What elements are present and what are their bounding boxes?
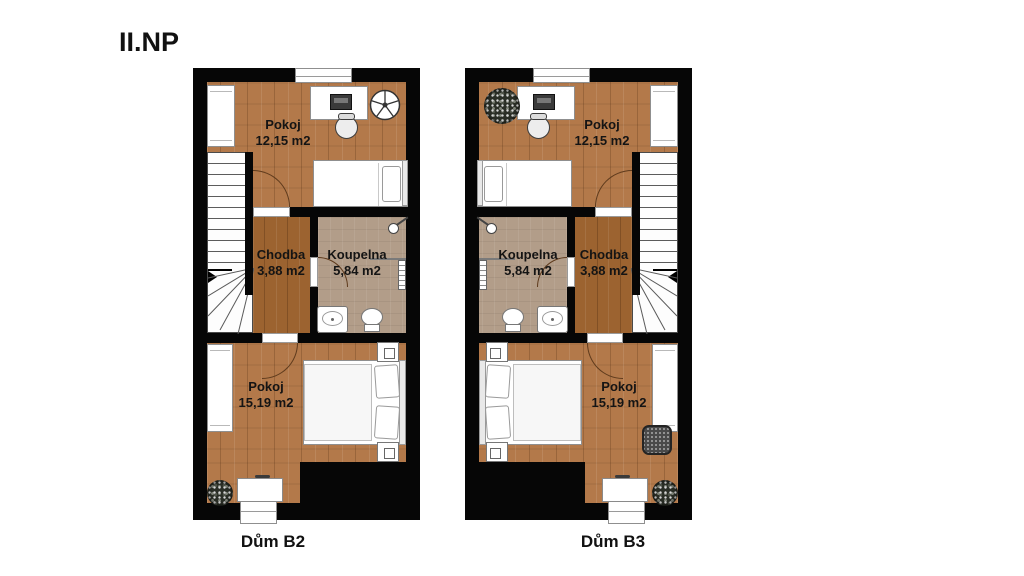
single-bed-icon	[477, 160, 572, 207]
nightstand-icon	[486, 442, 508, 462]
double-bed-icon	[303, 360, 406, 445]
wardrobe-top-icon	[650, 85, 678, 147]
door-leaf-bottom	[587, 333, 623, 343]
window-top	[533, 68, 590, 83]
toilet-tank-icon	[364, 324, 380, 332]
ceiling-fan-icon	[369, 89, 401, 121]
toilet-tank-icon	[505, 324, 521, 332]
window-top	[295, 68, 352, 83]
plant-bottom-icon	[207, 480, 233, 506]
sink-icon	[537, 306, 568, 333]
single-bed-icon	[313, 160, 408, 207]
nightstand-icon	[486, 342, 508, 362]
room-area: 5,84 m2	[478, 263, 578, 279]
room-label-bedroom-top: Pokoj 12,15 m2	[552, 117, 652, 148]
plant-top-icon	[484, 88, 520, 124]
rug-icon	[642, 425, 672, 455]
room-area: 15,19 m2	[569, 395, 669, 411]
house-label-b2: Dům B2	[203, 532, 343, 552]
floor-plan-dum-b2: Pokoj 12,15 m2 Chodba 3,88 m2 Koupelna 5…	[193, 68, 420, 520]
pillow-icon	[485, 405, 511, 440]
headboard-icon	[399, 360, 406, 445]
sink-icon	[317, 306, 348, 333]
floor-plan-sheet: II.NP	[0, 0, 1024, 576]
room-area: 12,15 m2	[233, 133, 333, 149]
plant-bottom-icon	[652, 480, 678, 506]
desk-chair-icon	[335, 116, 358, 139]
floor-plan-dum-b3: Pokoj 12,15 m2 Chodba 3,88 m2 Koupelna 5…	[465, 68, 692, 520]
room-name: Pokoj	[569, 379, 669, 395]
double-bed-icon	[479, 360, 582, 445]
pillow-icon	[485, 364, 511, 399]
room-area: 15,19 m2	[216, 395, 316, 411]
house-label-b3: Dům B3	[543, 532, 683, 552]
room-label-bedroom-bottom: Pokoj 15,19 m2	[569, 379, 669, 410]
door-leaf-top	[253, 207, 290, 217]
room-name: Pokoj	[233, 117, 333, 133]
computer-icon	[533, 94, 555, 110]
room-name: Koupelna	[478, 247, 578, 263]
wardrobe-top-icon	[207, 85, 235, 147]
pillow-icon	[484, 166, 503, 202]
room-label-bedroom-bottom: Pokoj 15,19 m2	[216, 379, 316, 410]
shower-icon	[388, 223, 399, 234]
shower-icon	[486, 223, 497, 234]
door-leaf-top	[595, 207, 632, 217]
room-label-bedroom-top: Pokoj 12,15 m2	[233, 117, 333, 148]
door-leaf-bottom	[262, 333, 298, 343]
room-name: Koupelna	[307, 247, 407, 263]
pillow-icon	[382, 166, 401, 202]
room-area: 5,84 m2	[307, 263, 407, 279]
page-title: II.NP	[119, 27, 179, 58]
pillow-icon	[374, 405, 400, 440]
dresser-icon	[237, 478, 283, 502]
pillow-icon	[374, 364, 400, 399]
headboard-icon	[402, 160, 408, 206]
desk-chair-icon	[527, 116, 550, 139]
headboard-icon	[477, 160, 483, 206]
room-label-bathroom: Koupelna 5,84 m2	[307, 247, 407, 278]
room-name: Pokoj	[216, 379, 316, 395]
nightstand-icon	[377, 342, 399, 362]
headboard-icon	[479, 360, 486, 445]
room-label-bathroom: Koupelna 5,84 m2	[478, 247, 578, 278]
room-name: Pokoj	[552, 117, 652, 133]
nightstand-icon	[377, 442, 399, 462]
room-area: 12,15 m2	[552, 133, 652, 149]
computer-icon	[330, 94, 352, 110]
dresser-icon	[602, 478, 648, 502]
